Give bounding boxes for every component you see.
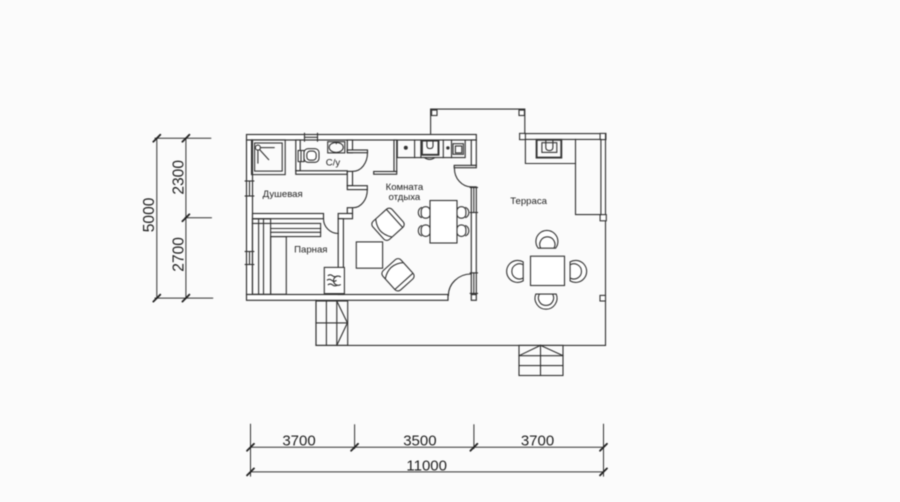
svg-text:2700: 2700	[171, 237, 188, 272]
svg-text:3500: 3500	[403, 432, 436, 449]
svg-text:2300: 2300	[171, 160, 188, 195]
svg-text:3700: 3700	[282, 432, 315, 449]
svg-text:5000: 5000	[141, 197, 158, 232]
svg-text:отдыха: отдыха	[389, 192, 421, 203]
svg-text:3700: 3700	[521, 432, 554, 449]
svg-text:Душевая: Душевая	[263, 189, 303, 200]
svg-text:С/у: С/у	[326, 158, 341, 169]
svg-text:11000: 11000	[406, 457, 447, 474]
svg-text:Терраса: Терраса	[510, 196, 547, 207]
svg-text:Парная: Парная	[294, 244, 327, 255]
